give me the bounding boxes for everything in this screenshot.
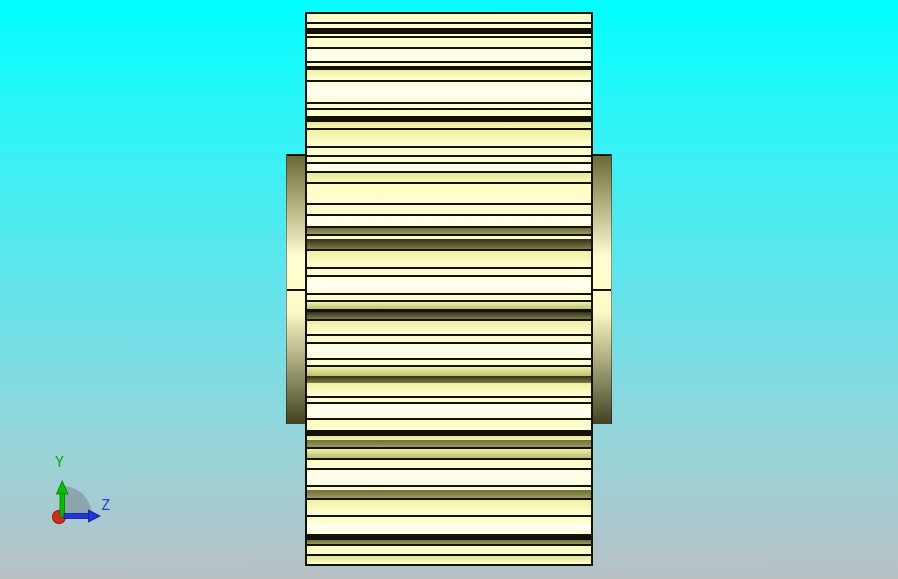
hub-rim-right bbox=[593, 154, 612, 424]
gear-tooth-stripe bbox=[307, 82, 591, 102]
gear-tooth-stripe bbox=[307, 522, 591, 534]
hub-rim-left bbox=[286, 154, 305, 424]
gear-tooth-stripe bbox=[307, 546, 591, 554]
z-axis-label: Z bbox=[101, 498, 110, 513]
gear-tooth-stripe bbox=[307, 367, 591, 376]
hub-silhouette-line-right bbox=[593, 289, 611, 291]
gear-tooth-stripe bbox=[307, 420, 591, 430]
gear-tooth-stripe bbox=[307, 251, 591, 267]
gear-tooth-stripe bbox=[307, 277, 591, 293]
gear-tooth-stripe bbox=[307, 173, 591, 182]
gear-tooth-stripe bbox=[307, 14, 591, 22]
cad-viewport[interactable]: Y Z bbox=[0, 0, 898, 579]
orientation-triad: Y Z bbox=[40, 450, 125, 540]
gear-tooth-stripe bbox=[307, 49, 591, 61]
gear-tooth-stripe bbox=[307, 70, 591, 80]
gear-tooth-stripe bbox=[307, 376, 591, 383]
gear-tooth-stripe bbox=[307, 449, 591, 458]
gear-tooth-stripe bbox=[307, 470, 591, 485]
gear-tooth-stripe bbox=[307, 239, 591, 249]
gear-tooth-stripe bbox=[307, 130, 591, 146]
gear-tooth-stripe bbox=[307, 500, 591, 515]
gear-tooth-stripe bbox=[307, 564, 591, 566]
gear-tooth-stripe bbox=[307, 490, 591, 498]
y-axis-label: Y bbox=[55, 455, 64, 470]
gear-tooth-stripe bbox=[307, 164, 591, 171]
gear-tooth-stripe bbox=[307, 312, 591, 319]
gear-tooth-stripe bbox=[307, 38, 591, 47]
hub-silhouette-line-left bbox=[287, 289, 305, 291]
gear-tooth-stripe bbox=[307, 404, 591, 418]
gear-tooth-stripe bbox=[307, 344, 591, 358]
gear-tooth-stripe bbox=[307, 440, 591, 447]
gear-tooth-stripe bbox=[307, 148, 591, 155]
gear-tooth-stripe bbox=[307, 460, 591, 468]
gear-face bbox=[305, 12, 593, 566]
gear-tooth-stripe bbox=[307, 216, 591, 226]
gear-tooth-stripe bbox=[307, 321, 591, 334]
gear-tooth-stripe bbox=[307, 205, 591, 214]
gear-tooth-stripe bbox=[307, 383, 591, 396]
gear-tooth-stripe bbox=[307, 302, 591, 309]
gear-tooth-stripe bbox=[307, 184, 591, 203]
